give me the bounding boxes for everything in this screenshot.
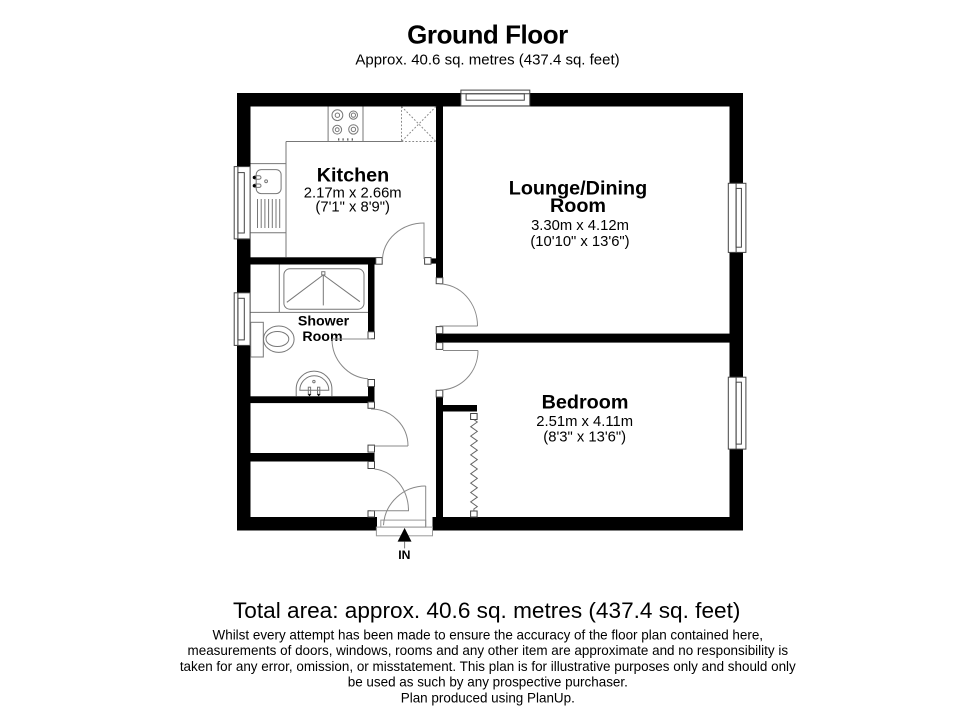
svg-text:Room: Room (550, 195, 606, 217)
svg-text:Shower: Shower (298, 313, 350, 329)
svg-text:taken for any error, omission,: taken for any error, omission, or missta… (180, 659, 796, 674)
svg-text:Approx. 40.6 sq. metres (437.4: Approx. 40.6 sq. metres (437.4 sq. feet) (355, 51, 619, 68)
svg-text:IN: IN (398, 548, 410, 562)
svg-text:Bedroom: Bedroom (542, 392, 629, 414)
svg-text:3.30m x 4.12m: 3.30m x 4.12m (531, 218, 629, 234)
svg-text:be used as such by any prospec: be used as such by any prospective purch… (348, 675, 628, 690)
svg-text:Ground Floor: Ground Floor (407, 20, 568, 50)
svg-text:Whilst every attempt has been: Whilst every attempt has been made to en… (213, 627, 764, 642)
svg-text:measurements of doors, windows: measurements of doors, windows, rooms an… (188, 643, 789, 658)
svg-text:(7'1" x 8'9"): (7'1" x 8'9") (315, 200, 390, 216)
svg-text:(8'3" x 13'6"): (8'3" x 13'6") (543, 429, 626, 445)
svg-text:Kitchen: Kitchen (317, 164, 390, 186)
svg-text:Total area: approx. 40.6 sq. m: Total area: approx. 40.6 sq. metres (437… (233, 598, 740, 623)
svg-text:Room: Room (302, 329, 342, 345)
svg-text:2.51m x 4.11m: 2.51m x 4.11m (536, 414, 633, 430)
svg-text:Plan produced using PlanUp.: Plan produced using PlanUp. (401, 691, 575, 706)
svg-text:(10'10" x 13'6"): (10'10" x 13'6") (530, 234, 629, 250)
